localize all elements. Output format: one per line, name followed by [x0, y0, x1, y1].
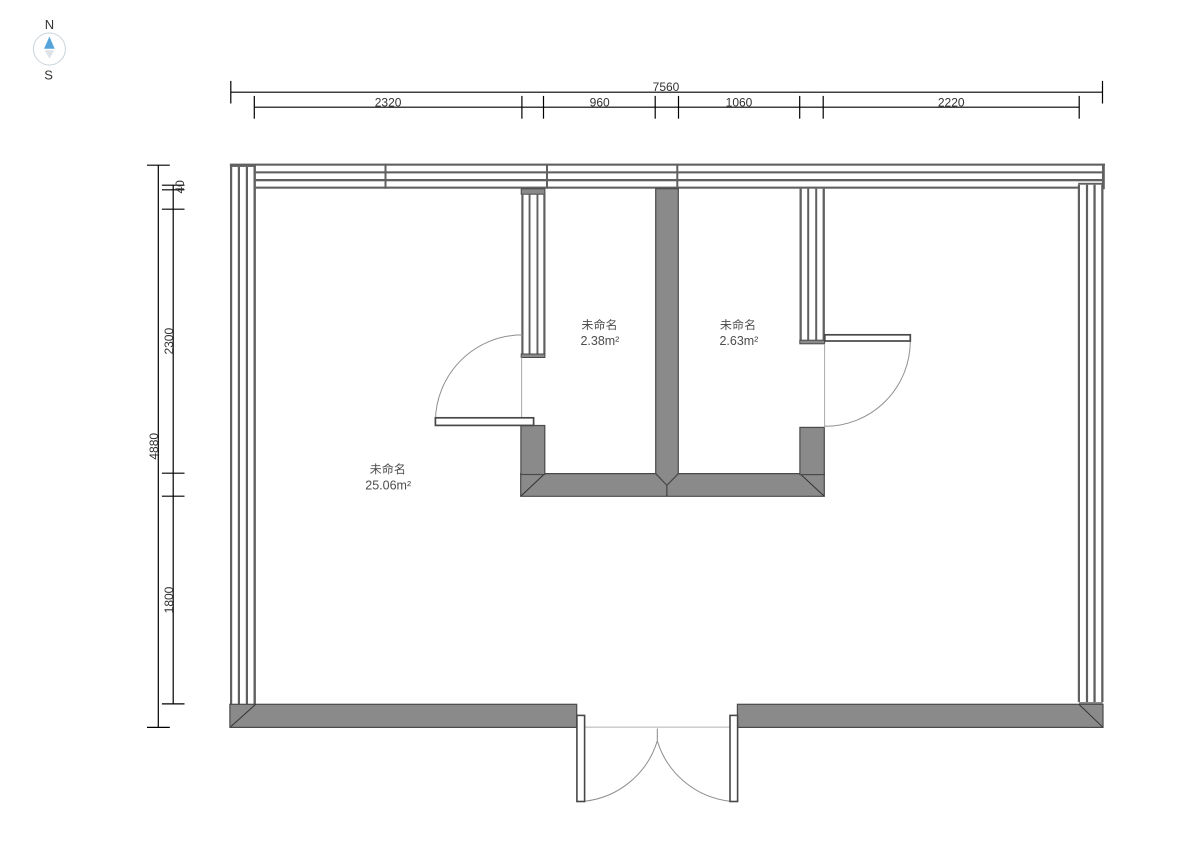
svg-text:2.38m²: 2.38m² [580, 334, 619, 348]
svg-text:S: S [44, 68, 53, 83]
svg-text:1060: 1060 [726, 95, 753, 109]
svg-text:2.63m²: 2.63m² [719, 334, 758, 348]
svg-text:2320: 2320 [375, 95, 402, 109]
svg-text:7560: 7560 [653, 80, 680, 94]
svg-text:960: 960 [590, 95, 610, 109]
svg-text:N: N [45, 17, 54, 32]
svg-text:25.06m²: 25.06m² [365, 479, 411, 493]
svg-text:40: 40 [173, 180, 187, 194]
svg-text:4880: 4880 [147, 433, 161, 460]
svg-text:2220: 2220 [938, 95, 965, 109]
svg-text:1800: 1800 [162, 586, 176, 613]
svg-text:2300: 2300 [162, 328, 176, 355]
